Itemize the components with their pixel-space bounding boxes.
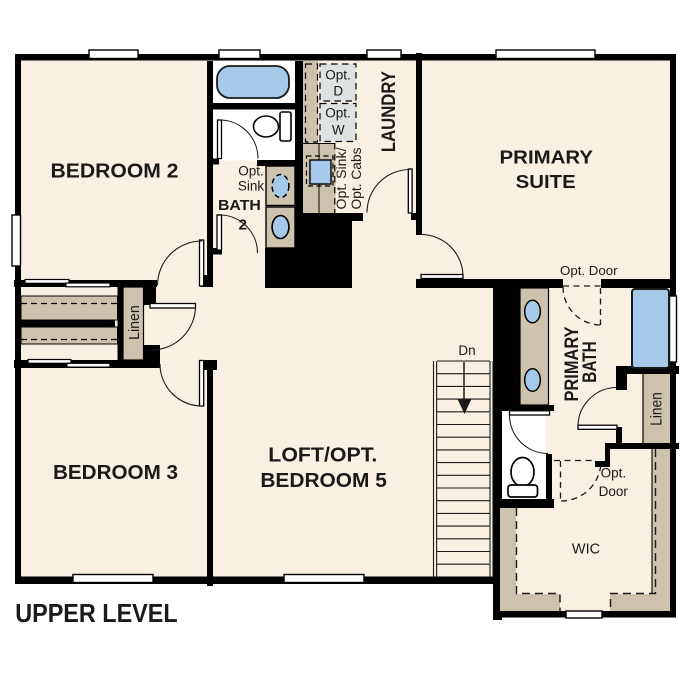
svg-text:WIC: WIC (572, 542, 600, 558)
svg-text:PRIMARY: PRIMARY (500, 147, 594, 167)
svg-text:Sink: Sink (238, 179, 265, 194)
svg-text:Opt.: Opt. (325, 106, 351, 121)
svg-text:Door: Door (599, 484, 629, 499)
svg-text:W: W (332, 123, 345, 138)
svg-text:Opt. Sink/: Opt. Sink/ (334, 147, 349, 209)
svg-text:UPPER LEVEL: UPPER LEVEL (15, 598, 178, 628)
svg-text:BEDROOM 5: BEDROOM 5 (260, 469, 387, 492)
svg-text:LAUNDRY: LAUNDRY (378, 71, 400, 152)
svg-text:Opt. Door: Opt. Door (560, 263, 618, 278)
svg-text:BEDROOM 2: BEDROOM 2 (51, 160, 179, 183)
svg-text:LOFT/OPT.: LOFT/OPT. (268, 443, 377, 466)
svg-text:BATH: BATH (218, 197, 261, 214)
svg-text:BEDROOM 3: BEDROOM 3 (53, 461, 178, 484)
svg-text:BATH: BATH (579, 341, 601, 383)
svg-text:Linen: Linen (127, 305, 143, 340)
svg-text:2: 2 (239, 217, 247, 234)
svg-text:D: D (333, 84, 343, 99)
svg-text:Opt. Cabs: Opt. Cabs (349, 147, 364, 209)
svg-text:Opt.: Opt. (601, 466, 627, 481)
svg-text:Opt.: Opt. (238, 164, 264, 179)
svg-text:Opt.: Opt. (325, 68, 351, 83)
svg-text:Dn: Dn (458, 343, 475, 358)
svg-text:SUITE: SUITE (516, 172, 576, 192)
svg-text:Linen: Linen (648, 392, 665, 426)
